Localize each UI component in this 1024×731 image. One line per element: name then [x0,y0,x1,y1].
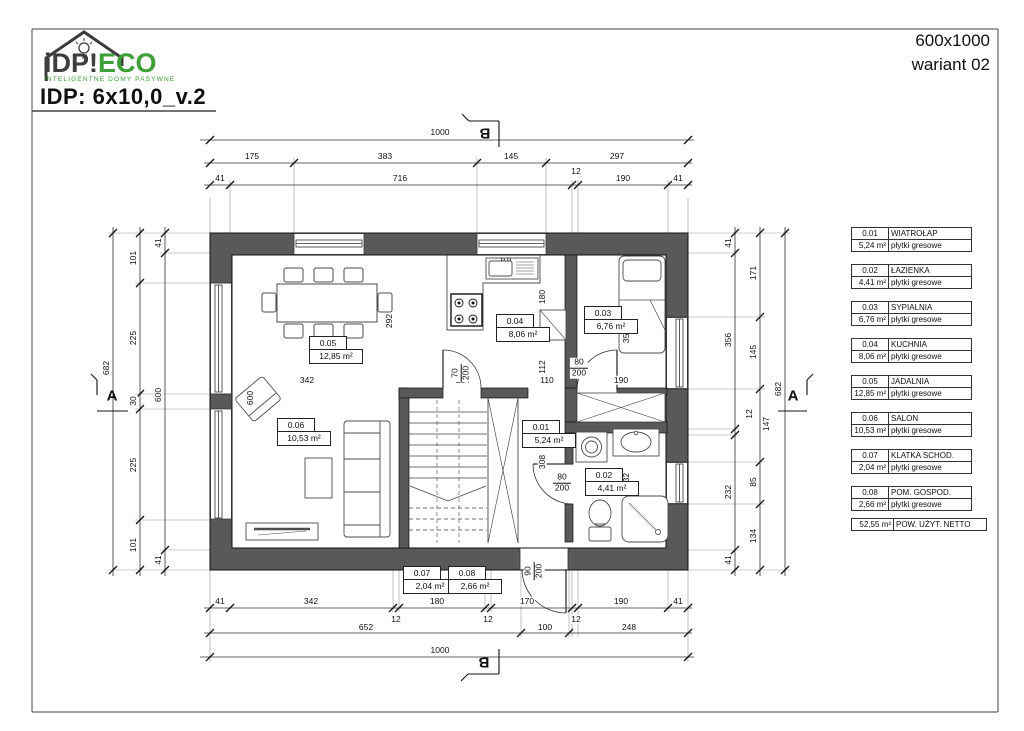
dim-label: 248 [621,623,637,632]
room-tag-jadalnia: 0.05 12,85 m² [309,336,363,364]
room-number: 0.08 [448,566,486,580]
dim-label: 134 [749,528,758,544]
dim-label: 190 [613,597,629,606]
room-area: 4,41 m² [585,481,639,496]
legend-room-floor: płytki gresowe [888,276,972,289]
logo-bang: ! [89,48,98,78]
dim-label: 190 [615,174,631,183]
dim-label: 85 [749,476,758,487]
dim-label: 101 [129,537,138,553]
legend-room-entry: 0.01 WIATROŁAP 5,24 m² płytki gresowe [852,228,972,252]
dim-label: 180 [429,597,445,606]
dim-label: 147 [762,416,771,432]
legend-room-entry: 0.02 ŁAZIENKA 4,41 m² płytki gresowe [852,265,972,289]
room-tag-gospod: 0.08 2,66 m² [448,566,502,594]
legend-room-area: 8,06 m² [851,350,889,363]
legend-room-entry: 0.07 KLATKA SCHOD. 2,04 m² płytki gresow… [852,450,972,474]
wardrobe [577,393,665,422]
dim-label: 232 [724,484,733,500]
legend-room-entry: 0.04 KUCHNIA 8,06 m² płytki gresowe [852,339,972,363]
section-marker-a-right: A [788,388,799,405]
dim-label: 652 [358,623,374,632]
legend-room-floor: płytki gresowe [888,239,972,252]
legend-room-area: 2,66 m² [851,498,889,511]
dim-label: 682 [774,381,783,397]
dim-label: 171 [749,265,758,281]
dim-label: 308 [538,454,547,470]
dim-label: 30 [129,395,138,406]
legend-room-area: 12,85 m² [851,387,889,400]
logo-text-dark: iDP [44,48,89,78]
dim-label: 41 [154,554,163,565]
door-size-label: 80 200 [553,473,571,494]
dim-label: 110 [539,376,555,385]
legend-total-row: 52,55 m² POW. UŻYT. NETTO [852,519,987,531]
logo-tagline: INTELIGENTNE DOMY PASYWNE [44,76,175,83]
dim-label: 600 [154,387,163,403]
page-title: IDP: 6x10,0_v.2 [40,84,206,110]
room-tag-sypialnia: 0.03 6,76 m² [584,306,638,334]
dim-label: 356 [724,332,733,348]
shower [622,496,668,542]
door-size-label: 80 200 [570,358,588,379]
room-number: 0.07 [403,566,441,580]
logo: iDP!ECO INTELIGENTNE DOMY PASYWNE [32,45,232,87]
sheet-variant: wariant 02 [912,55,990,75]
legend-room-area: 2,04 m² [851,461,889,474]
dim-label: 383 [377,152,393,161]
door-height: 200 [553,484,571,494]
toilet [589,500,611,541]
legend-room-floor: płytki gresowe [888,498,972,511]
dim-label: 41 [154,237,163,248]
dim-label: 600 [246,390,255,406]
room-tag-wiatrolap: 0.01 5,24 m² [522,420,576,448]
dim-label: 41 [214,597,225,606]
dim-label: 716 [392,174,408,183]
room-area: 2,66 m² [448,579,502,594]
washing-machine [576,432,607,462]
bathroom-sink [613,429,659,456]
legend-room-entry: 0.08 POM. GOSPOD. 2,66 m² płytki gresowe [852,487,972,511]
dim-label: 145 [503,152,519,161]
coffee-table [305,458,332,498]
legend-total-label: POW. UŻYT. NETTO [893,518,987,531]
logo-text-green: ECO [98,48,157,78]
dim-label: 41 [672,174,683,183]
dim-label: 682 [102,360,111,376]
room-number: 0.01 [522,420,560,434]
legend-room-floor: płytki gresowe [888,350,972,363]
legend-room-floor: płytki gresowe [888,387,972,400]
dim-label: 1000 [430,128,451,137]
section-marker-b-bottom: B [479,654,490,671]
dim-label: 342 [303,597,319,606]
dim-label: 41 [214,174,225,183]
legend-room-floor: płytki gresowe [888,424,972,437]
room-number: 0.05 [309,336,347,350]
legend-room-floor: płytki gresowe [888,313,972,326]
room-area: 12,85 m² [309,349,363,364]
legend-room-floor: płytki gresowe [888,461,972,474]
dim-label: 100 [537,623,553,632]
dim-label: 12 [570,167,581,176]
dim-label: 170 [519,597,535,606]
room-tag-salon: 0.06 10,53 m² [277,418,331,446]
dim-label: 180 [538,289,547,305]
dim-label: 12 [482,615,493,624]
dim-label: 225 [129,457,138,473]
room-number: 0.03 [584,306,622,320]
door-size-label: 90 200 [524,562,545,580]
tv-bench [246,523,318,540]
room-area: 8,06 m² [496,327,550,342]
room-number: 0.04 [496,314,534,328]
door-height: 200 [570,369,588,379]
dim-label: 292 [385,313,394,329]
dim-label: 190 [613,376,629,385]
legend-room-entry: 0.06 SALON 10,53 m² płytki gresowe [852,413,972,437]
dim-label: 175 [244,152,260,161]
room-legend: 0.01 WIATROŁAP 5,24 m² płytki gresowe 0.… [852,228,972,524]
dim-label: 41 [724,237,733,248]
stove [451,294,482,326]
dim-label: 41 [724,554,733,565]
room-area: 6,76 m² [584,319,638,334]
door-size-label: 70 200 [451,364,472,382]
dim-label: 342 [299,376,315,385]
sheet-size: 600x1000 [915,31,990,51]
door-height: 200 [462,364,472,382]
door-height: 200 [535,562,545,580]
dim-label: 145 [749,344,758,360]
legend-room-entry: 0.05 JADALNIA 12,85 m² płytki gresowe [852,376,972,400]
dim-label: 12 [745,408,754,419]
dim-label: 12 [390,615,401,624]
dim-label: 41 [672,597,683,606]
room-tag-kuchnia: 0.04 8,06 m² [496,314,550,342]
room-area: 5,24 m² [522,433,576,448]
dim-label: 112 [538,359,547,375]
legend-room-area: 6,76 m² [851,313,889,326]
legend-room-entry: 0.03 SYPIALNIA 6,76 m² płytki gresowe [852,302,972,326]
room-number: 0.02 [585,468,623,482]
dim-label: 101 [129,250,138,266]
legend-total-area: 52,55 m² [851,518,894,531]
sofa [344,421,390,537]
legend-room-area: 5,24 m² [851,239,889,252]
dim-label: 225 [129,330,138,346]
legend-room-area: 10,53 m² [851,424,889,437]
drawing-sheet: iDP!ECO INTELIGENTNE DOMY PASYWNE IDP: 6… [0,0,1024,731]
svg-text:iDP!ECO: iDP!ECO [44,48,157,78]
section-marker-b-top: B [480,125,491,142]
room-tag-lazienka: 0.02 4,41 m² [585,468,639,496]
legend-room-area: 4,41 m² [851,276,889,289]
dim-label: 297 [609,152,625,161]
section-marker-a-left: A [107,388,118,405]
room-area: 10,53 m² [277,431,331,446]
dim-label: 1000 [430,646,451,655]
room-number: 0.06 [277,418,315,432]
dim-label: 12 [570,615,581,624]
